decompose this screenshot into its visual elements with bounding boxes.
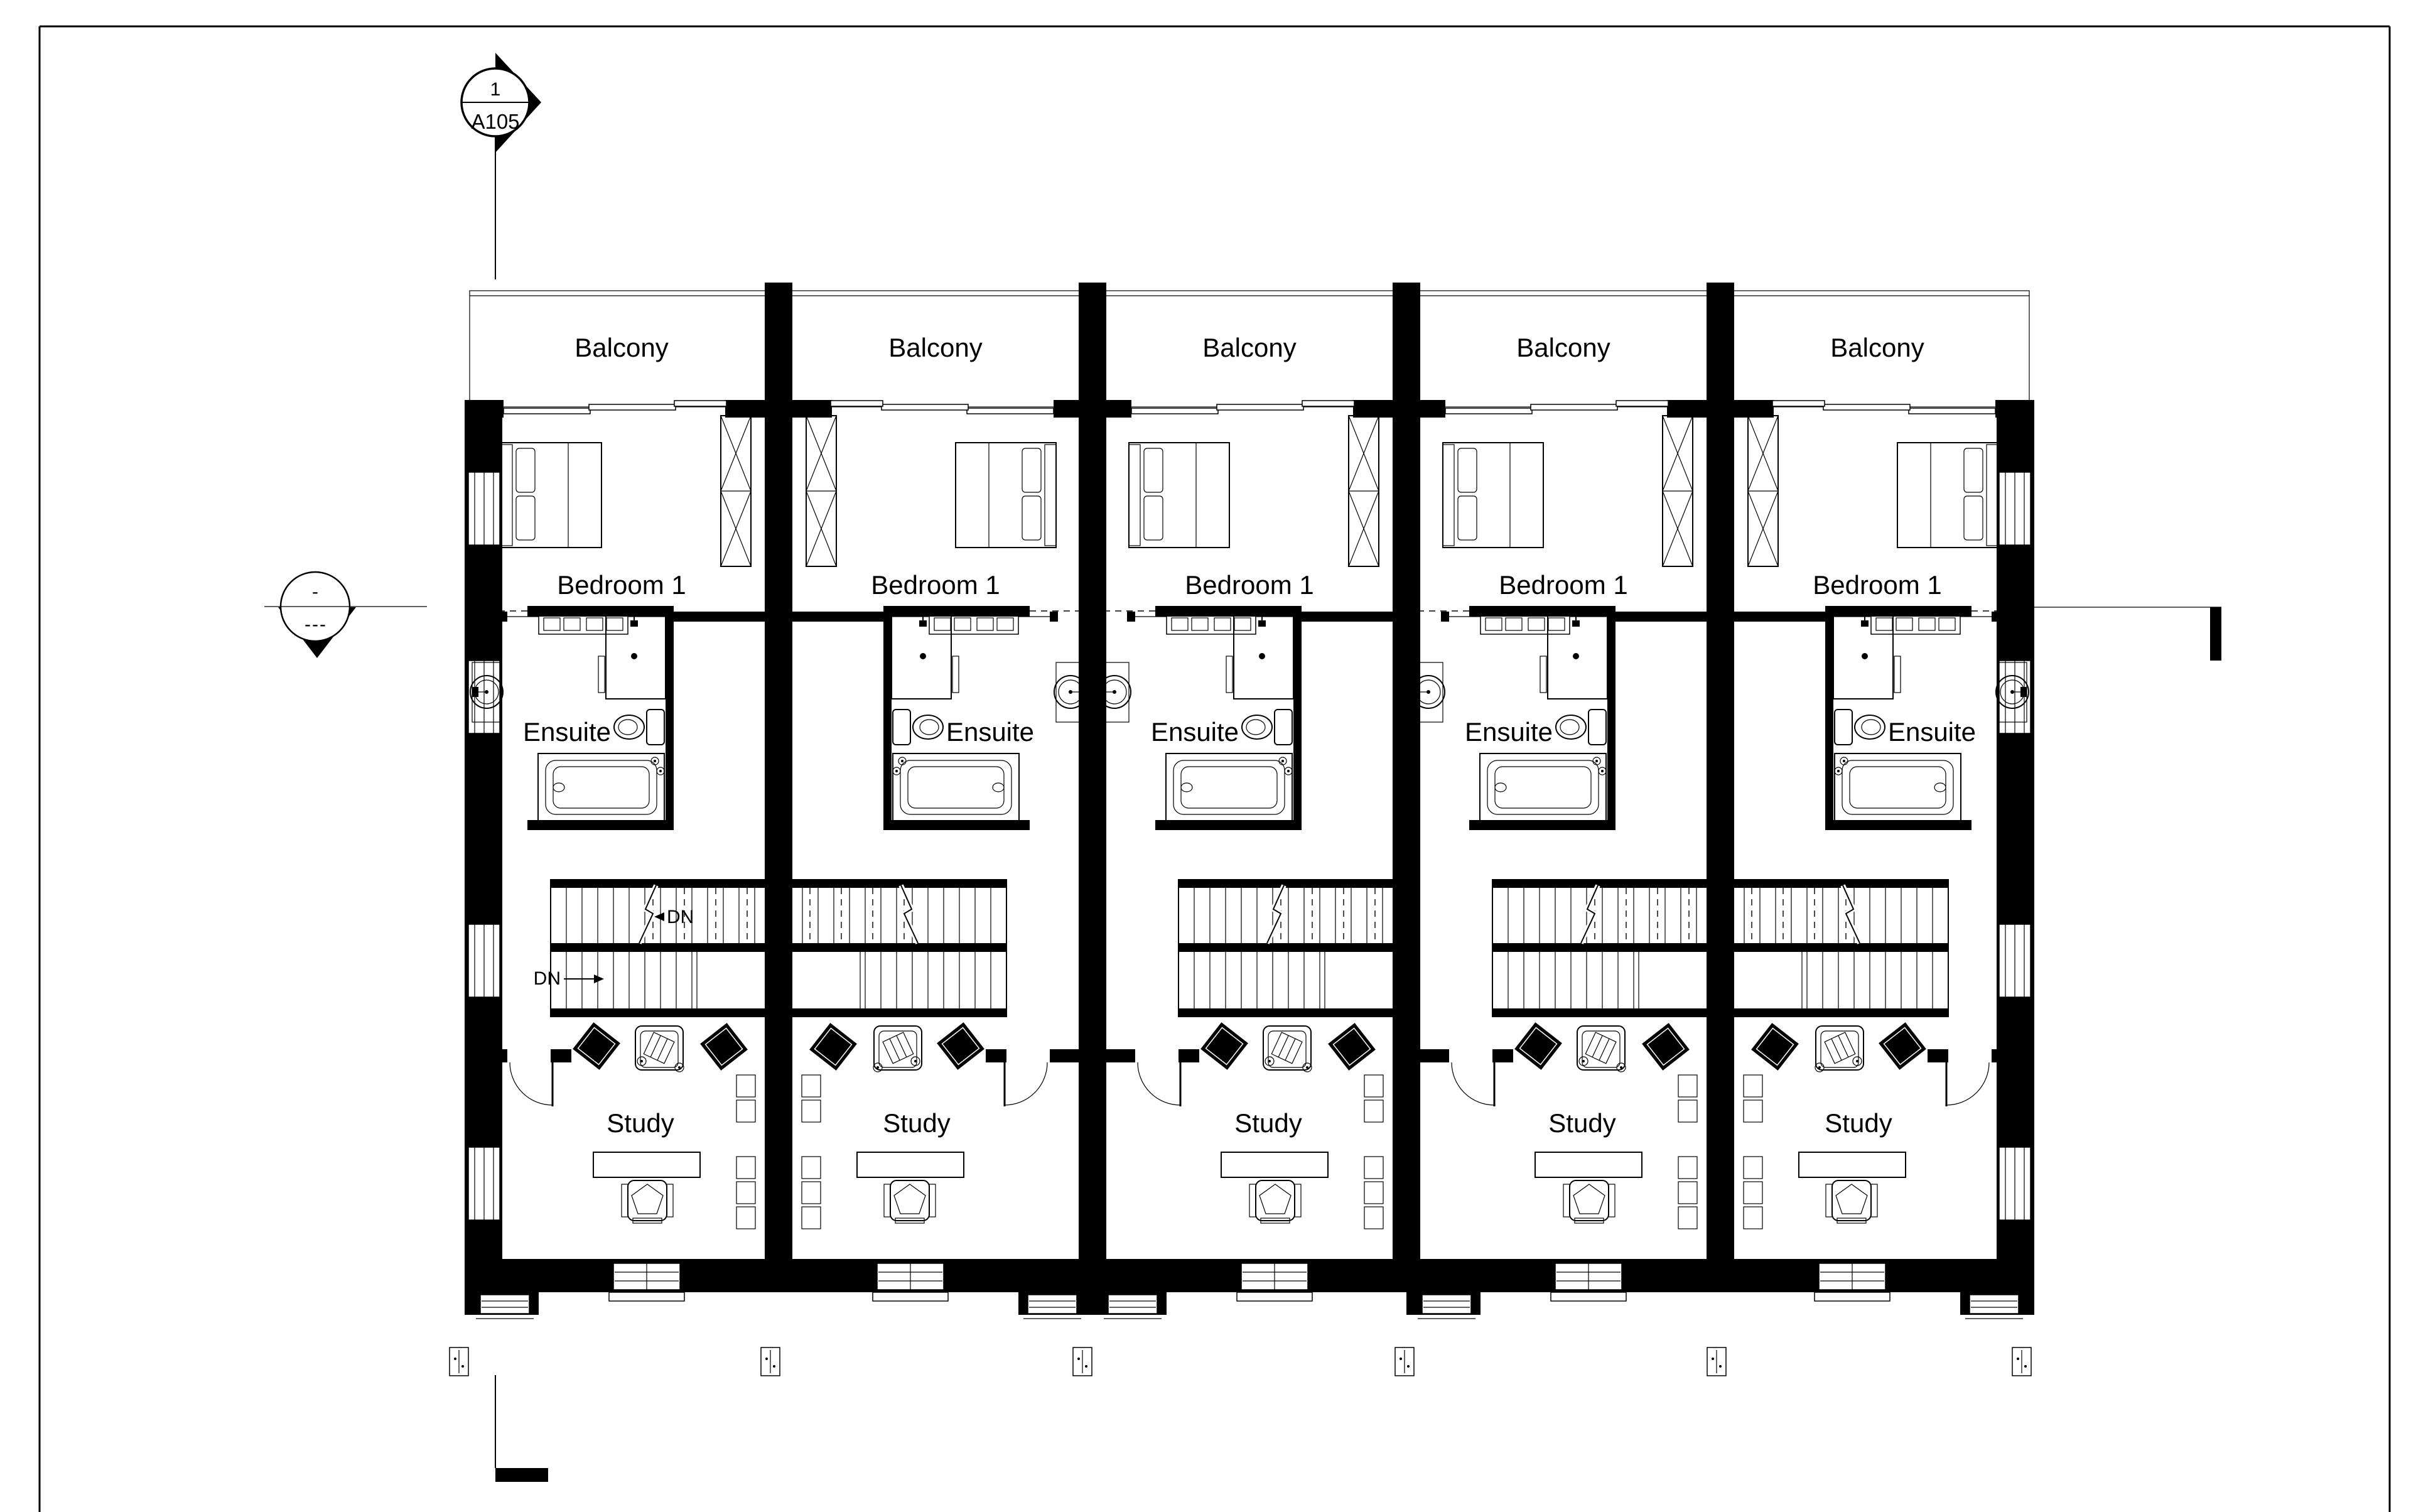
- bedroom-label: Bedroom 1: [871, 570, 1000, 600]
- party-wall: [1393, 283, 1420, 1261]
- ensuite-label: Ensuite: [1888, 717, 1976, 747]
- ensuite-label: Ensuite: [946, 717, 1034, 747]
- window: [1999, 1147, 2031, 1220]
- bedroom-label: Bedroom 1: [1185, 570, 1313, 600]
- party-wall: [1707, 283, 1734, 1261]
- detail-number: 1: [490, 79, 501, 100]
- door-tag: [1073, 1347, 1092, 1376]
- dn-label: DN: [534, 968, 561, 989]
- ensuite-label: Ensuite: [523, 717, 611, 747]
- window: [468, 472, 500, 545]
- section-cut-bottom-left: [495, 1375, 548, 1482]
- dn-label: DN: [667, 907, 694, 927]
- door-tag: [1707, 1347, 1726, 1376]
- door-tag: [450, 1347, 468, 1376]
- door-tag: [761, 1347, 780, 1376]
- section-cut-right: [2034, 607, 2221, 661]
- study-label: Study: [883, 1108, 950, 1138]
- door-tag: [2012, 1347, 2031, 1376]
- sheet-number: A105: [471, 110, 519, 133]
- window: [468, 924, 500, 997]
- party-wall: [1079, 283, 1106, 1261]
- marker-bottom-text: ---: [305, 614, 327, 635]
- study-label: Study: [1825, 1108, 1892, 1138]
- unit-4: Balcony Bedroom 1 Ensuite Study: [1406, 291, 1720, 1319]
- balcony-label: Balcony: [1516, 333, 1610, 362]
- floor-plan-canvas: Balcony Bedroom 1 Ensuite Study DN DN Ba…: [0, 0, 2411, 1512]
- window: [468, 1147, 500, 1220]
- window: [1999, 472, 2031, 545]
- marker-top-text: -: [312, 581, 320, 602]
- study-label: Study: [607, 1108, 674, 1138]
- bedroom-label: Bedroom 1: [1499, 570, 1627, 600]
- balcony-label: Balcony: [1202, 333, 1296, 362]
- window: [1999, 924, 2031, 997]
- drawing-sheet: { "drawing": { "section_marker_top": { "…: [0, 0, 2411, 1512]
- unit-5: Balcony Bedroom 1 Ensuite Study: [1720, 291, 2034, 1319]
- unit-2: Balcony Bedroom 1 Ensuite Study: [779, 291, 1092, 1319]
- level-marker-left: - ---: [264, 572, 427, 658]
- balcony-label: Balcony: [888, 333, 982, 362]
- stair-down-annotation-lower: DN: [534, 968, 604, 989]
- party-wall: [765, 283, 792, 1261]
- bedroom-label: Bedroom 1: [557, 570, 686, 600]
- balcony-label: Balcony: [1830, 333, 1924, 362]
- section-marker-top: 1 A105: [461, 53, 541, 279]
- unit-1: Balcony Bedroom 1 Ensuite Study DN DN: [465, 291, 779, 1319]
- bedroom-label: Bedroom 1: [1813, 570, 1941, 600]
- balcony-label: Balcony: [574, 333, 668, 362]
- study-label: Study: [1548, 1108, 1615, 1138]
- door-tag: [1395, 1347, 1414, 1376]
- study-label: Study: [1234, 1108, 1302, 1138]
- ensuite-label: Ensuite: [1465, 717, 1553, 747]
- ensuite-label: Ensuite: [1151, 717, 1239, 747]
- unit-3: Balcony Bedroom 1 Ensuite Study: [1092, 291, 1406, 1319]
